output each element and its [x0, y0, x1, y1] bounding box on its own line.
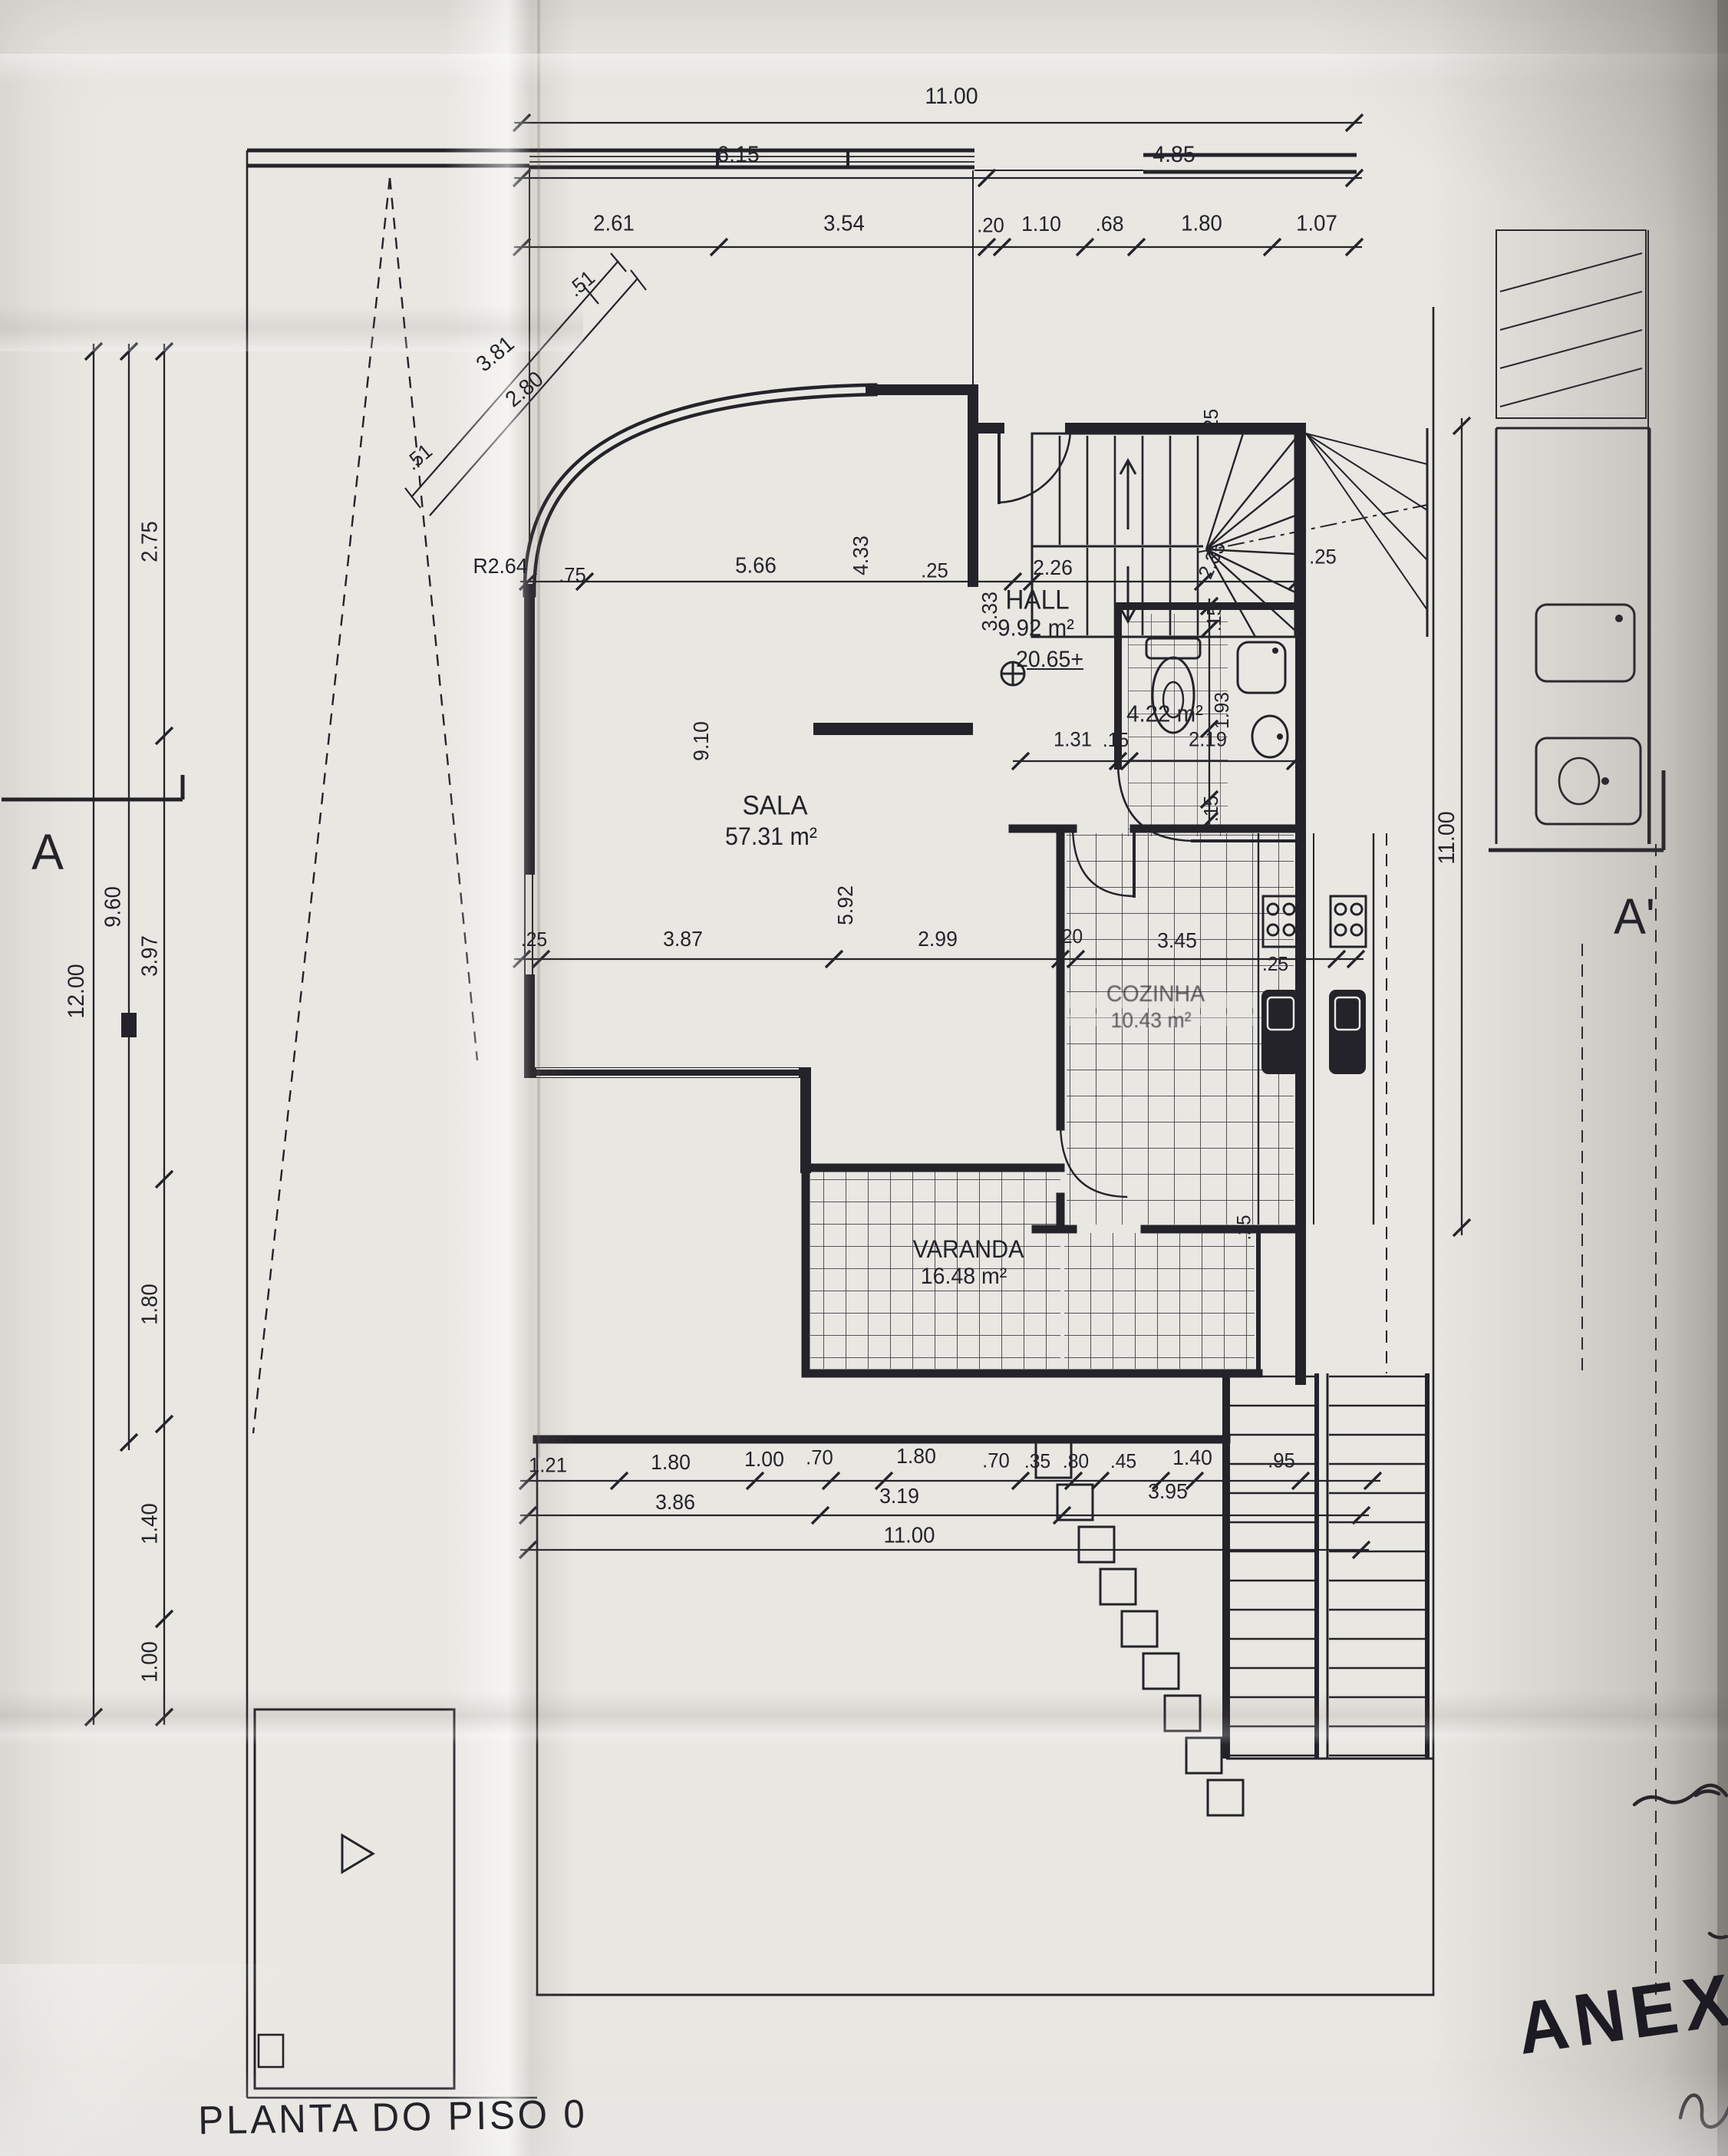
laundry-tub-2	[1536, 738, 1641, 824]
room-sala: SALA	[742, 793, 807, 819]
dim-025-sala: .25	[521, 929, 547, 949]
site-boundary	[121, 150, 1656, 2098]
dim-top-485: 4.85	[1153, 143, 1195, 166]
dim-566: 5.66	[735, 555, 777, 578]
dim-bot-070b: .70	[982, 1451, 1010, 1472]
dim-020-sala: .20	[1057, 926, 1083, 946]
dim-chain-sala-upper	[519, 573, 1305, 590]
dim-top-110: 1.10	[1021, 213, 1061, 235]
varanda-tiles-2	[1064, 1233, 1255, 1369]
floor-plan-drawing	[0, 0, 1728, 2156]
dim-bot-140: 1.40	[1172, 1447, 1212, 1469]
dim-025-v: .25	[1235, 1215, 1255, 1240]
room-varanda-area: 16.48 m²	[921, 1265, 1007, 1288]
dim-radius: R2.64	[473, 555, 528, 577]
dim-bot-180a: 1.80	[651, 1452, 691, 1473]
dim-right-1100: 11.00	[1436, 811, 1459, 864]
dim-chain-top-total	[513, 114, 1363, 131]
handwritten-scribbles	[1634, 1785, 1728, 2127]
dim-left-180: 1.80	[140, 1284, 162, 1325]
roof-hatch	[1496, 230, 1646, 418]
dim-131: 1.31	[1054, 730, 1092, 750]
dim-chain-bottom-total	[519, 1541, 1370, 1558]
oven-unit-1	[1261, 990, 1300, 1074]
dim-433: 4.33	[850, 536, 872, 575]
dim-bot-395: 3.95	[1148, 1481, 1188, 1502]
dim-chain-bottom-fine	[519, 1472, 1381, 1489]
room-hall-area: 9.92 m²	[998, 616, 1074, 640]
dim-025-a: .25	[921, 561, 948, 582]
dim-193: 1.93	[1212, 692, 1232, 729]
dim-bot-100: 1.00	[744, 1449, 784, 1470]
room-sala-area: 57.31 m²	[725, 824, 817, 849]
dim-top-020: .20	[977, 216, 1004, 236]
room-varanda: VARANDA	[913, 1237, 1024, 1261]
dim-top-180: 1.80	[1181, 213, 1222, 236]
dim-592: 5.92	[835, 885, 856, 925]
section-a-prime: A'	[1614, 891, 1655, 941]
dim-left-140: 1.40	[140, 1503, 162, 1544]
level-value: 20.65+	[1016, 648, 1083, 671]
dim-910: 9.10	[691, 721, 712, 761]
dim-top-615: 6.15	[717, 143, 759, 166]
dim-015-wc: .15	[1103, 730, 1129, 750]
dim-226: 2.26	[1033, 557, 1073, 579]
dim-left-397: 3.97	[140, 935, 162, 977]
section-marker-lines	[2, 770, 1664, 850]
dim-bot-080: .80	[1063, 1451, 1089, 1471]
dim-bot-386: 3.86	[655, 1492, 695, 1513]
dim-bot-070a: .70	[806, 1448, 833, 1469]
stepping-stones	[1036, 1442, 1243, 1815]
dim-219: 2.19	[1189, 730, 1227, 750]
dim-top-total: 11.00	[925, 85, 978, 108]
dim-top-107: 1.07	[1296, 213, 1337, 236]
dim-025-b: .25	[1309, 547, 1337, 568]
dim-top-068: .68	[1096, 213, 1124, 235]
room-cozinha: COZINHA	[1106, 983, 1205, 1006]
dim-left-100: 1.00	[140, 1641, 162, 1683]
dim-left-275: 2.75	[140, 521, 162, 562]
dim-025-stair: .25	[1201, 409, 1221, 435]
dim-299: 2.99	[918, 928, 958, 950]
dim-075: .75	[559, 565, 586, 586]
dim-025-k: .25	[1262, 954, 1288, 974]
dim-345: 3.45	[1157, 930, 1197, 951]
front-facade-walls	[529, 150, 1357, 589]
dim-bot-180b: 1.80	[896, 1446, 936, 1467]
dim-top-354: 3.54	[823, 213, 865, 236]
dim-bot-319: 3.19	[879, 1485, 919, 1507]
scanned-floor-plan-page: 11.006.154.852.613.54.201.10.681.801.071…	[0, 0, 1728, 2156]
room-hall: HALL	[1005, 587, 1069, 614]
cooktop-2	[1331, 896, 1366, 947]
dim-015-stair: .15	[1204, 605, 1224, 631]
dim-387: 3.87	[663, 928, 703, 950]
dim-bot-1100: 11.00	[884, 1525, 935, 1548]
garden-stairs	[1226, 1373, 1433, 1759]
oven-unit-2	[1329, 990, 1366, 1074]
dim-left-1200: 12.00	[65, 964, 88, 1018]
dim-left-960: 9.60	[103, 886, 125, 928]
section-a: A	[31, 826, 64, 877]
dim-chain-top-fine	[513, 239, 1363, 255]
dim-bot-121: 1.21	[529, 1455, 567, 1476]
dim-bot-035: .35	[1024, 1451, 1050, 1471]
dim-chain-left-outer	[85, 343, 102, 1726]
dim-015-wc2: .15	[1201, 796, 1221, 822]
plan-title: PLANTA DO PISO 0	[198, 2095, 588, 2141]
dim-bot-045: .45	[1110, 1451, 1136, 1471]
dim-top-261: 2.61	[593, 213, 635, 236]
room-wc-area: 4.22 m²	[1126, 702, 1203, 726]
dim-bot-095: .95	[1268, 1451, 1295, 1472]
room-cozinha-area: 10.43 m²	[1111, 1010, 1192, 1031]
